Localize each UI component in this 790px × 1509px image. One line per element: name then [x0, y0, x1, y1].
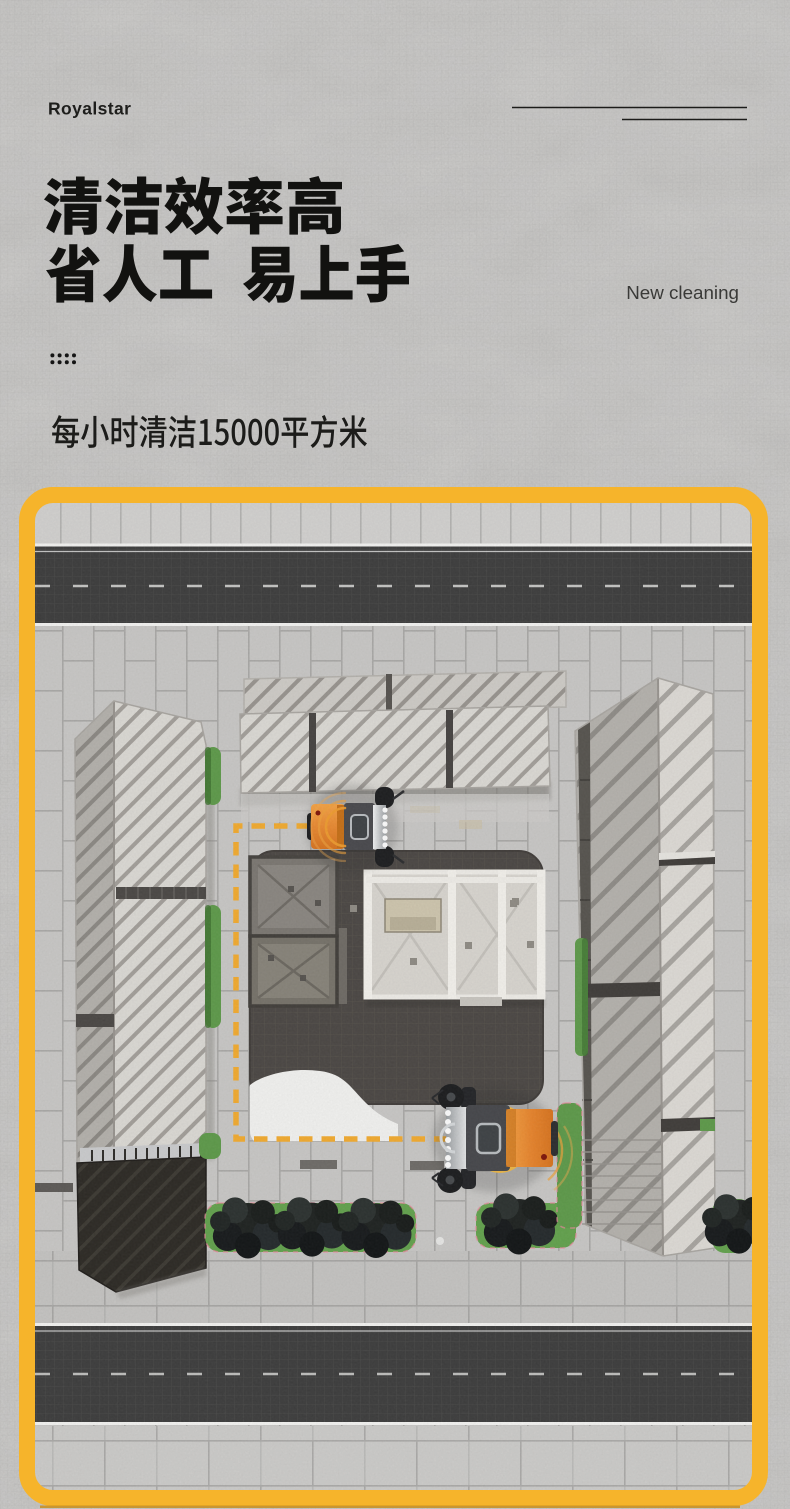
- svg-text:New cleaning: New cleaning: [626, 282, 739, 303]
- svg-text:Royalstar: Royalstar: [48, 99, 131, 119]
